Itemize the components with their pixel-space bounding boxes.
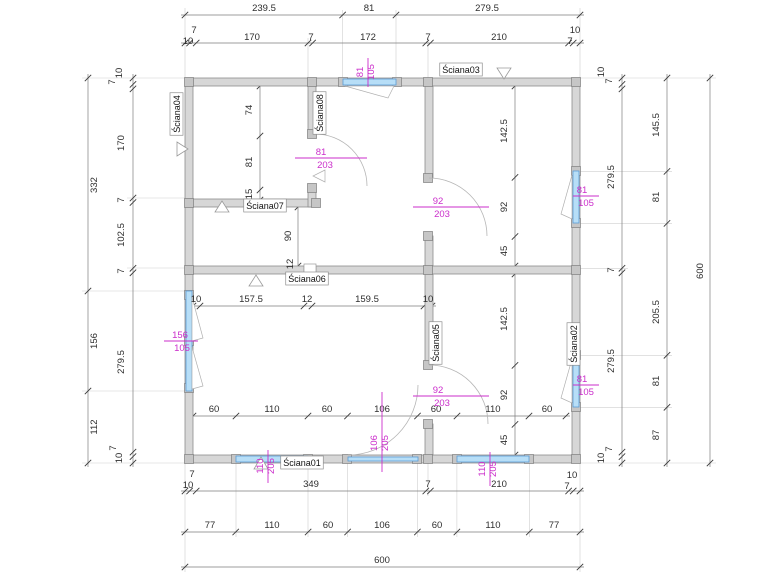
wall-name-text: Ściana05 [430,324,441,362]
doors [313,134,488,455]
wall-name-text: Ściana06 [288,273,326,284]
dimension-label: 12 [285,259,296,270]
dimension-label: 15 [244,189,255,200]
log-joint [572,455,581,464]
dimension-label: 279.5 [116,350,127,374]
dimension-label: 87 [651,430,662,441]
wall-sciana06-seg2 [316,266,572,274]
opening-width-label: 156 [172,330,188,341]
dimension-label: 60 [542,404,553,415]
dimension-label: 7 [425,479,430,490]
dimension-label: 159.5 [355,294,379,305]
opening-height-label: 105 [578,387,594,398]
dimension-label: 7 [604,446,615,451]
opening-width-label: 110 [255,458,266,473]
opening-height-label: 203 [434,398,450,409]
dimension-label: 210 [491,479,507,490]
dimension-label: 7 [564,481,569,492]
dimension-label: 7 [108,445,119,450]
dimension-label: 110 [264,404,279,415]
wall-sciana05-seg1 [425,86,433,178]
dimension-label: 10 [596,67,607,78]
dimension-label: 10 [114,453,125,464]
log-joint [185,266,194,275]
opening-height-label: 105 [578,198,594,209]
opening-height-label: 205 [380,435,391,451]
dimension-label: 279.5 [606,349,617,373]
dimension-label: 110 [264,520,279,531]
log-joint [312,199,321,208]
wall-name-label: Ściana02 [567,323,580,366]
vent-triangle-icon [497,68,511,79]
log-joint [185,199,194,208]
log-joint [424,420,433,429]
wall-name-label: Ściana08 [313,92,326,135]
wall-name-label: Ściana03 [440,63,483,76]
dimension-label: 90 [283,231,294,242]
log-joint [424,78,433,87]
dimension-label: 600 [374,555,390,566]
dimension-label: 7 [116,197,127,202]
log-joint [185,455,194,464]
dimension-label: 10 [183,480,194,491]
door-leaf-icon [313,170,325,182]
dimension-label: 110 [485,520,500,531]
dimension-label: 349 [303,479,319,490]
dimension-label: 60 [432,520,443,531]
opening-height-label: 203 [434,209,450,220]
dimension-label: 332 [89,177,100,193]
dimension-label: 239.5 [252,3,276,14]
dimension-label: 10 [570,25,581,36]
window-casement-icon [345,86,394,98]
opening-height-label: 105 [174,343,190,354]
dimension-label: 142.5 [499,307,510,331]
door-threshold-bottom [348,457,418,461]
dimension-label: 7 [189,469,194,480]
dimension-label: 112 [89,419,100,434]
dimension-label: 12 [302,294,313,305]
dimension-label: 10 [183,36,194,47]
dimension-label: 45 [499,246,510,257]
wall-name-text: Ściana03 [442,64,480,75]
dimension-label: 7 [425,32,430,43]
opening-height-label: 205 [488,461,499,477]
window-right-upper [573,171,579,223]
dimension-label: 10 [191,294,202,305]
log-joint [424,266,433,275]
dimension-label: 81 [364,3,375,14]
wall-name-label: Ściana06 [286,272,329,285]
dimension-label: 279.5 [606,165,617,189]
dimension-label: 92 [499,202,510,213]
dimension-label: 92 [499,390,510,401]
dimension-label: 279.5 [475,3,499,14]
opening-width-label: 81 [577,374,588,385]
dimension-label: 60 [322,404,333,415]
wall-name-label: Ściana05 [429,322,442,365]
dimension-label: 600 [695,263,706,279]
log-joint [572,78,581,87]
dimension-label: 170 [244,32,260,43]
dimension-label: 205.5 [651,300,662,324]
dimension-label: 142.5 [499,119,510,143]
vent-triangle-icon [249,275,263,286]
opening-width-label: 81 [355,67,366,78]
dimension-label: 81 [651,376,662,387]
dimension-label: 10 [596,453,607,464]
log-joint [308,78,317,87]
dimension-label: 172 [360,32,376,43]
dimension-label: 210 [491,32,507,43]
opening-height-label: 205 [266,458,277,474]
dimension-label: 106 [374,520,390,531]
dimension-label: 145.5 [651,113,662,137]
opening-width-label: 81 [577,185,588,196]
wall-name-label: Ściana04 [170,93,183,136]
wall-name-text: Ściana04 [171,95,182,133]
wall-name-text: Ściana08 [314,94,325,132]
dimension-label: 77 [549,520,560,531]
opening-width-label: 81 [316,147,327,158]
dimension-label: 7 [191,25,196,36]
dimension-label: 81 [244,157,255,168]
dimension-label: 10 [114,68,125,79]
opening-width-label: 92 [433,385,444,396]
dimension-label: 7 [116,268,127,273]
dimension-label: 156 [89,333,100,349]
log-joint [572,266,581,275]
dimension-label: 74 [244,105,255,116]
window-casement-icon [561,175,572,219]
dimension-label: 10 [567,470,578,481]
dimension-label: 7 [107,79,118,84]
dimension-label: 81 [651,192,662,203]
dimension-label: 7 [604,78,615,83]
dimension-label: 7 [308,32,313,43]
opening-width-label: 92 [433,196,444,207]
opening-width-label: 106 [369,435,380,451]
dimension-label: 60 [323,520,334,531]
opening-height-label: 105 [366,64,377,80]
dimension-label: 102.5 [116,223,127,247]
dimension-label: 110 [485,404,500,415]
log-joint [424,455,433,464]
wall-name-label: Ściana07 [244,199,287,212]
wall-name-text: Ściana02 [568,325,579,363]
dimension-label: 7 [606,267,617,272]
dimension-label: 170 [116,135,127,151]
dimension-label: 45 [499,435,510,446]
wall-name-text: Ściana07 [246,200,284,211]
floor-plan-page: 239.581279.57101707172721010710157.51215… [0,0,768,581]
wall-name-label: Ściana01 [281,456,324,469]
window-casement-icon [192,347,203,389]
dimension-label: 7 [567,36,572,47]
dimension-label: 77 [205,520,216,531]
wall-name-text: Ściana01 [283,457,321,468]
dimension-label: 60 [209,404,220,415]
dimension-label: 10 [423,294,434,305]
dimension-label: 157.5 [239,294,263,305]
labels: 239.581279.57101707172721010710157.51215… [89,3,706,566]
log-joint [424,232,433,241]
floor-plan-canvas: 239.581279.57101707172721010710157.51215… [0,0,768,581]
opening-height-label: 203 [317,160,333,171]
log-joint [185,78,194,87]
log-joint [308,184,317,193]
opening-width-label: 110 [477,461,488,476]
